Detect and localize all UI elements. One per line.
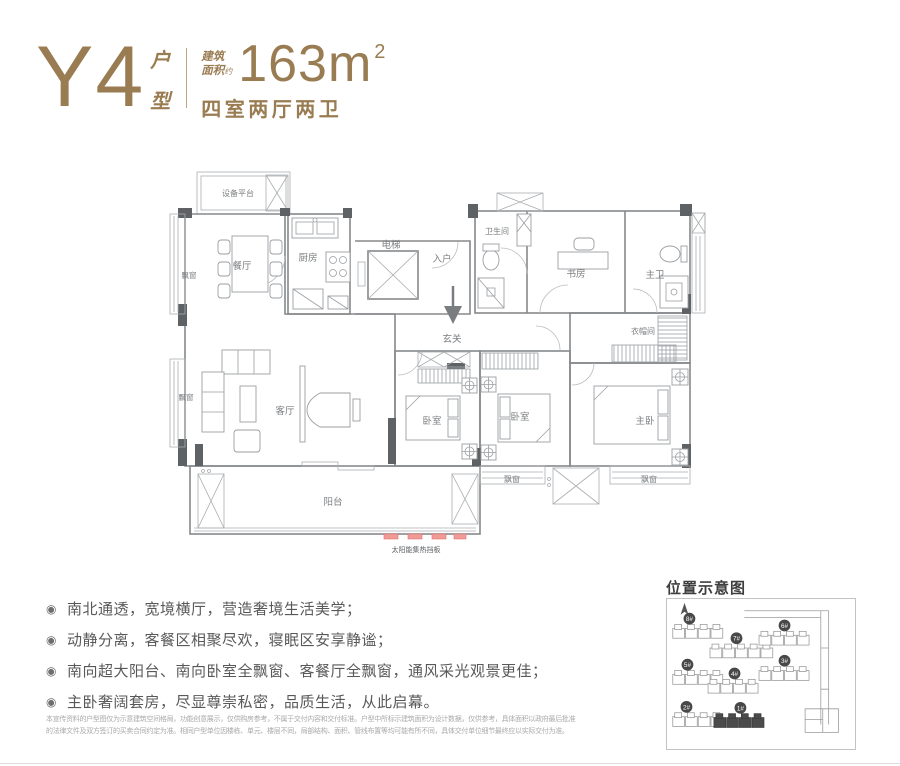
elevator-shaft [358, 251, 418, 299]
feature-text-1: 南北通透，宽境横厅，营造奢境生活美学； [67, 594, 362, 625]
floorplan-page: Y4 户 型 建筑 面积约 163m 2 四室两厅两卫 [0, 0, 900, 766]
map-building-badges: 8# 7# 6# 5# 4# 3# 2# 1# [681, 613, 791, 714]
badge-7: 7# [733, 636, 741, 643]
feature-text-3: 南向超大阳台、南向卧室全飘窗、客餐厅全飘窗，通风采光观景更佳； [67, 656, 548, 687]
room-label-bedroom-2: 卧室 [510, 411, 529, 423]
disclaimer: 本宣传资料的户型图仅为示意建筑空间格局，功能创意展示，仅供购房参考，不属于交付内… [46, 714, 575, 738]
area-prefix-line2: 面积约 [201, 64, 232, 79]
entry-arrow-icon [444, 286, 462, 324]
room-label-master-bath: 主卫 [645, 269, 665, 281]
location-map-svg: 8# 7# 6# 5# 4# 3# 2# 1# [667, 599, 855, 749]
map-building-8 [673, 624, 723, 638]
header: Y4 户 型 建筑 面积约 163m 2 四室两厅两卫 [36, 38, 385, 122]
area-value: 163m [238, 42, 372, 86]
bay-window-label-3: 飘窗 [504, 474, 520, 484]
room-label-elevator: 电梯 [381, 239, 401, 251]
room-label-bathroom: 卫生间 [485, 226, 509, 236]
area-prefix: 建筑 面积约 [201, 50, 232, 79]
location-map-title: 位置示意图 [666, 577, 746, 598]
room-label-kitchen: 厨房 [298, 252, 317, 264]
badge-2: 2# [683, 704, 691, 711]
room-label-cloakroom: 衣帽间 [631, 326, 655, 336]
study-desk [558, 238, 608, 269]
room-label-entry: 入户 [432, 253, 451, 265]
bay-window-label-1: 飘窗 [182, 270, 197, 280]
room-label-balcony: 阳台 [323, 496, 342, 508]
badge-1: 1# [737, 705, 745, 712]
header-divider [186, 48, 187, 108]
feature-list: ◉南北通透，宽境横厅，营造奢境生活美学； ◉动静分离，客餐区相聚尽欢，寝眠区安享… [46, 594, 548, 718]
living-room-furniture [202, 350, 360, 452]
map-building-1-highlighted [714, 714, 764, 728]
map-building-4 [708, 679, 758, 693]
badge-8: 8# [686, 616, 694, 623]
feature-item-1: ◉南北通透，宽境横厅，营造奢境生活美学； [46, 594, 548, 625]
feature-text-2: 动静分离，客餐区相聚尽欢，寝眠区安享静谧； [67, 625, 393, 656]
floor-plan-drawing: 设备平台 餐厅 厨房 电梯 入户 玄关 卫生间 书房 主卫 衣帽间 客厅 卧室 … [160, 156, 720, 566]
area-superscript: 2 [374, 42, 385, 62]
bay-window-label-2: 飘窗 [179, 392, 194, 402]
location-map: 8# 7# 6# 5# 4# 3# 2# 1# [666, 598, 856, 750]
disclaimer-line-2: 的法律文件及双方签订的买卖合同约定为准。相同户型单位因楼栋、单元、楼层不同，局部… [46, 726, 575, 738]
room-label-bedroom-1: 卧室 [422, 415, 441, 427]
room-label-dining: 餐厅 [232, 260, 252, 272]
area-approx: 约 [224, 67, 232, 76]
room-label-equipment-platform: 设备平台 [222, 188, 254, 198]
map-building-6 [759, 631, 809, 645]
area-prefix-line1: 建筑 [201, 50, 232, 64]
badge-5: 5# [684, 662, 692, 669]
wardrobes [482, 316, 687, 369]
bullet-icon: ◉ [46, 625, 57, 656]
bullet-icon: ◉ [46, 594, 57, 625]
unit-type-char-1: 户 [150, 44, 170, 73]
room-label-foyer: 玄关 [442, 333, 462, 345]
room-label-living: 客厅 [275, 405, 295, 417]
bay-window-label-4: 飘窗 [641, 474, 657, 484]
bullet-icon: ◉ [46, 656, 57, 687]
solar-panel-label: 太阳能集热挡板 [392, 545, 441, 554]
map-building-7 [710, 644, 773, 658]
area-block: 建筑 面积约 163m 2 四室两厅两卫 [201, 42, 385, 122]
bottom-divider [0, 763, 900, 764]
badge-3: 3# [781, 658, 789, 665]
layout-description: 四室两厅两卫 [201, 93, 385, 122]
room-label-master-bedroom: 主卧 [635, 415, 655, 427]
badge-4: 4# [731, 671, 739, 678]
disclaimer-line-1: 本宣传资料的户型图仅为示意建筑空间格局，功能创意展示，仅供购房参考，不属于交付内… [46, 714, 575, 726]
unit-type-code: Y4 [36, 38, 145, 116]
north-arrow-icon [681, 603, 689, 615]
unit-type-char-2: 型 [150, 85, 170, 114]
badge-6: 6# [781, 623, 789, 630]
room-label-study: 书房 [566, 268, 585, 280]
map-building-3 [759, 667, 809, 681]
feature-item-3: ◉南向超大阳台、南向卧室全飘窗、客餐厅全飘窗，通风采光观景更佳； [46, 656, 548, 687]
feature-item-2: ◉动静分离，客餐区相聚尽欢，寝眠区安享静谧； [46, 625, 548, 656]
unit-type-suffix: 户 型 [150, 44, 170, 114]
